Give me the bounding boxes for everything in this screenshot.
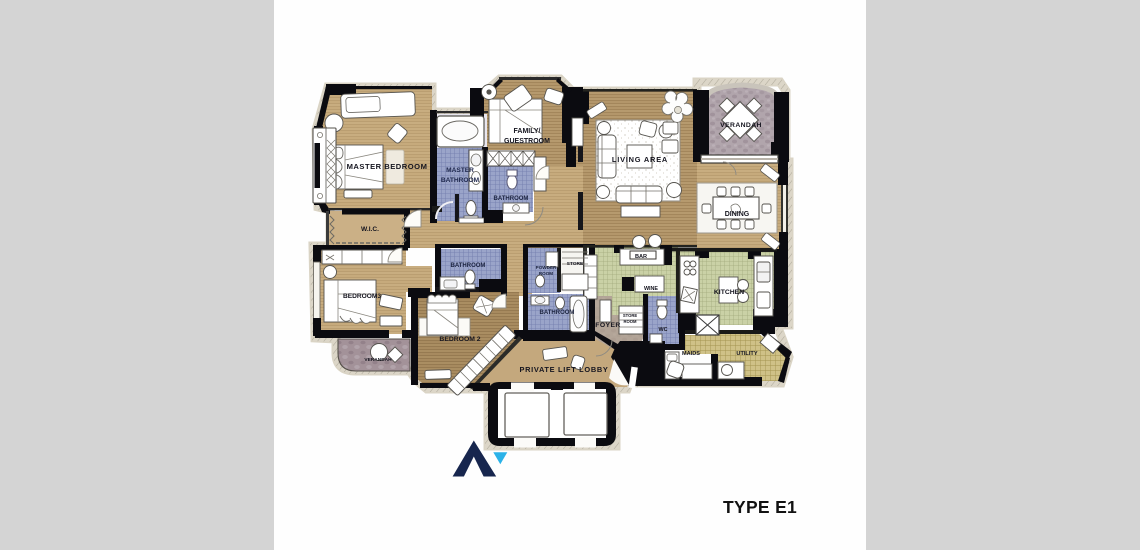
svg-text:TYPE E1: TYPE E1 (723, 497, 797, 517)
svg-text:KITCHEN: KITCHEN (714, 289, 744, 296)
svg-text:WINE: WINE (644, 286, 658, 292)
svg-text:WC: WC (659, 327, 668, 333)
svg-text:GUESTROOM: GUESTROOM (504, 138, 550, 145)
svg-text:BATHROOM: BATHROOM (441, 177, 480, 184)
svg-text:ROOM: ROOM (623, 319, 637, 324)
svg-text:MASTER: MASTER (446, 167, 474, 174)
svg-text:FOYER: FOYER (595, 322, 620, 329)
svg-text:FAMILY/: FAMILY/ (514, 128, 541, 135)
svg-text:UTILITY: UTILITY (736, 351, 757, 357)
svg-text:MAIDS: MAIDS (682, 351, 700, 357)
svg-text:MASTER BEDROOM: MASTER BEDROOM (347, 162, 428, 171)
svg-text:BATHROOM: BATHROOM (540, 310, 575, 316)
svg-text:STORE: STORE (623, 313, 638, 318)
svg-text:VERANDAH: VERANDAH (364, 357, 392, 363)
svg-text:STORE: STORE (567, 261, 584, 267)
svg-text:BEDROOM 2: BEDROOM 2 (439, 336, 480, 343)
svg-text:W.I.C.: W.I.C. (361, 226, 379, 233)
svg-text:BAR: BAR (635, 254, 647, 260)
svg-text:POWDER: POWDER (536, 265, 557, 270)
svg-text:PRIVATE LIFT LOBBY: PRIVATE LIFT LOBBY (519, 365, 608, 374)
svg-text:BATHROOM: BATHROOM (494, 196, 529, 202)
svg-text:BEDROOM3: BEDROOM3 (343, 293, 381, 300)
svg-text:DINING: DINING (725, 211, 750, 218)
svg-text:ROOM: ROOM (539, 271, 553, 276)
svg-text:VERANDAH: VERANDAH (720, 122, 762, 129)
svg-text:BATHROOM: BATHROOM (451, 263, 486, 269)
svg-text:LIVING AREA: LIVING AREA (612, 155, 668, 164)
